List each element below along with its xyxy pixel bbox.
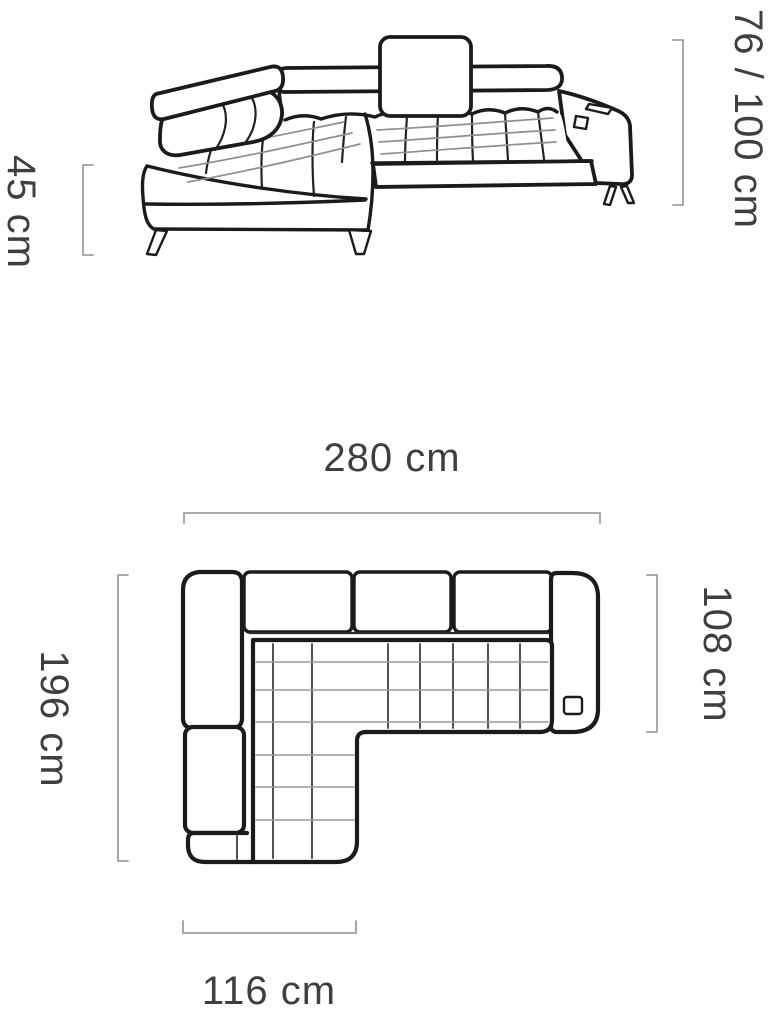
bracket-45 — [83, 165, 93, 255]
plan-back-cushion-1 — [244, 572, 352, 632]
perspective-view: 45 cm 76 / 100 cm — [0, 9, 770, 269]
label-seat-height: 45 cm — [0, 155, 43, 269]
dimension-total-depth: 196 cm — [32, 575, 128, 861]
bracket-280 — [184, 513, 600, 523]
diagram-canvas: 45 cm 76 / 100 cm — [0, 0, 781, 1020]
dimension-chaise-width: 116 cm — [183, 921, 356, 1013]
plan-seat — [253, 640, 552, 862]
headrest — [380, 37, 471, 116]
label-back-height: 76 / 100 cm — [726, 9, 770, 229]
right-base — [373, 161, 596, 187]
bracket-116 — [183, 921, 356, 933]
label-total-width: 280 cm — [323, 436, 460, 480]
plan-armrest-socket — [564, 697, 582, 714]
label-chaise-width: 116 cm — [202, 969, 336, 1013]
leg-front-right — [349, 230, 371, 254]
dimension-seat-height: 45 cm — [0, 155, 93, 269]
bracket-108 — [647, 575, 657, 732]
plan-left-armrest — [183, 572, 242, 728]
leg-arm-right — [621, 186, 634, 203]
bracket-196 — [118, 575, 128, 861]
plan-left-cushion — [185, 727, 244, 833]
label-total-depth: 196 cm — [32, 650, 76, 787]
plan-back-cushion-2 — [354, 572, 451, 632]
plan-view: 280 cm 196 cm 108 cm 116 cm — [32, 436, 739, 1013]
dimension-body-depth: 108 cm — [647, 575, 739, 732]
leg-arm-left — [604, 186, 616, 205]
armrest-socket-detail — [574, 116, 588, 129]
plan-front-strip — [188, 833, 253, 862]
label-body-depth: 108 cm — [695, 585, 739, 722]
right-seat-front-edge — [372, 161, 592, 163]
dimension-total-width: 280 cm — [184, 436, 600, 523]
sofa-dimension-diagram: 45 cm 76 / 100 cm — [0, 0, 781, 1020]
sofa-legs — [147, 186, 634, 255]
leg-front-left — [147, 230, 167, 255]
plan-back-cushion-3 — [454, 572, 552, 632]
dimension-back-height: 76 / 100 cm — [673, 9, 770, 229]
bracket-76-100 — [673, 40, 683, 205]
